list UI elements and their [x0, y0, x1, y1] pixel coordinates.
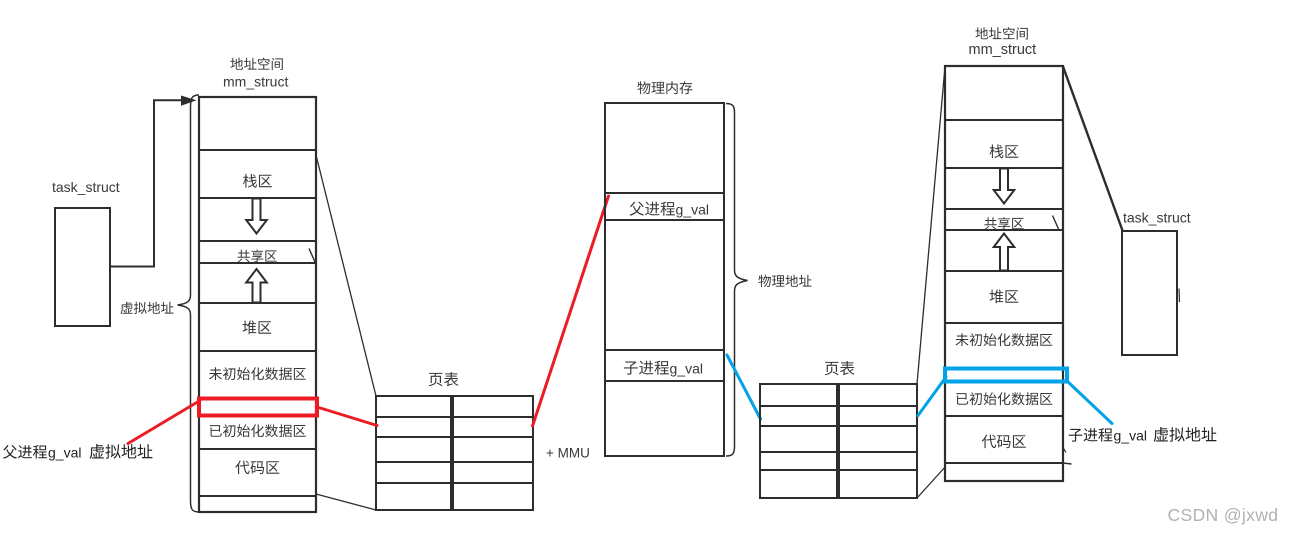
svg-text:g_val: g_val — [48, 445, 81, 461]
svg-text:task_struct: task_struct — [1123, 210, 1191, 226]
svg-text:g_val: g_val — [1114, 428, 1147, 444]
svg-text:CSDN @jxwd: CSDN @jxwd — [1168, 505, 1279, 525]
svg-text:mm_struct: mm_struct — [969, 42, 1037, 58]
svg-text:mm_struct: mm_struct — [223, 74, 288, 90]
svg-text:g_val: g_val — [676, 202, 709, 218]
svg-text:+ MMU: + MMU — [546, 446, 590, 461]
svg-text:g_val: g_val — [670, 361, 703, 377]
svg-text:task_struct: task_struct — [52, 179, 120, 195]
